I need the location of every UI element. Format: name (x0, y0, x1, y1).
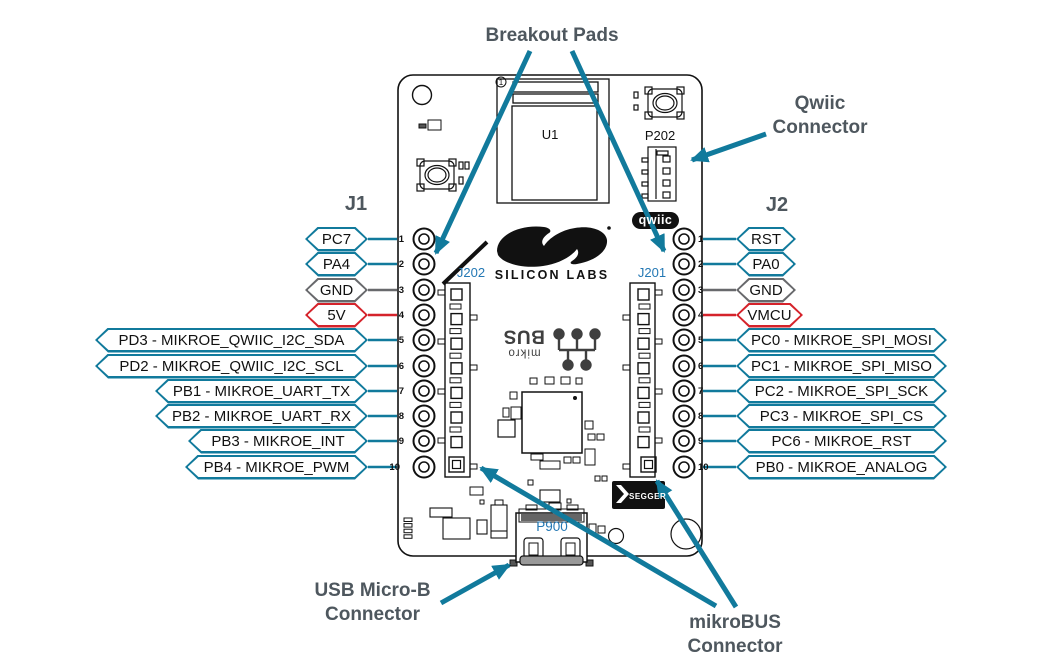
j1-pin-label-pc7: PC7 (305, 227, 368, 252)
board-annotation-diagram: Breakout Pads Qwiic Connector USB Micro-… (0, 0, 1054, 669)
qwiic-connector-refdes-label: P202 (639, 128, 681, 143)
j2-pin-label-pc3: PC3 - MIKROE_SPI_CS (736, 404, 947, 429)
arrow-qwiic (692, 134, 766, 160)
j1-pin-label-pa4: PA4 (305, 252, 368, 277)
j1-pin-label-pb3: PB3 - MIKROE_INT (188, 429, 368, 454)
j1-pin-number: 10 (386, 462, 400, 473)
usb-connector (510, 503, 593, 566)
header-j1-title: J1 (336, 193, 376, 216)
j2-pin-number: 4 (698, 310, 712, 321)
module-pin1-marker: 1 (498, 78, 505, 88)
j1-pin-number: 5 (390, 335, 404, 346)
leader-lines-j2 (703, 239, 736, 467)
j1-pin-label-pd2: PD2 - MIKROE_QWIIC_I2C_SCL (95, 354, 368, 379)
j1-pin-number: 6 (390, 361, 404, 372)
j1-pin-number: 7 (390, 386, 404, 397)
j2-pin-label-pc6: PC6 - MIKROE_RST (736, 429, 947, 454)
usb-connector-refdes-label: P900 (531, 519, 573, 534)
arrow-usb (441, 565, 509, 603)
j1-pin-label-pb2: PB2 - MIKROE_UART_RX (155, 404, 368, 429)
j2-pin-label-pb0: PB0 - MIKROE_ANALOG (736, 455, 947, 480)
mikrobus-socket-right-refdes-label: J201 (631, 265, 673, 280)
segger-logo-text: SEGGER (629, 492, 665, 501)
j1-pin-number: 8 (390, 411, 404, 422)
j2-pin-label-pc0: PC0 - MIKROE_SPI_MOSI (736, 328, 947, 353)
j1-pin-label-5v: 5V (305, 303, 368, 328)
j2-pin-number: 10 (698, 462, 712, 473)
header-j2-title: J2 (757, 194, 797, 217)
module-refdes-label: U1 (538, 127, 562, 142)
j2-pin-number: 9 (698, 436, 712, 447)
j1-pin-label-gnd: GND (305, 278, 368, 303)
j1-pin-number: 3 (390, 285, 404, 296)
j2-pin-number: 2 (698, 259, 712, 270)
j2-pin-label-pc1: PC1 - MIKROE_SPI_MISO (736, 354, 947, 379)
j1-pin-number: 4 (390, 310, 404, 321)
j2-pin-label-vmcu: VMCU (736, 303, 803, 328)
j1-pin-label-pb4: PB4 - MIKROE_PWM (185, 455, 368, 480)
j1-pin-number: 9 (390, 436, 404, 447)
mikrobus-logo-text: mikro BUS (498, 327, 550, 358)
j2-pin-number: 7 (698, 386, 712, 397)
j2-pin-number: 6 (698, 361, 712, 372)
silicon-labs-logo-text: SILICON LABS (488, 268, 616, 282)
j2-pin-label-pc2: PC2 - MIKROE_SPI_SCK (736, 379, 947, 404)
j1-pin-number: 1 (390, 234, 404, 245)
j1-pin-label-pb1: PB1 - MIKROE_UART_TX (155, 379, 368, 404)
j1-pin-label-pd3: PD3 - MIKROE_QWIIC_I2C_SDA (95, 328, 368, 353)
annotation-mikrobus-connector: mikroBUS Connector (660, 611, 810, 659)
j2-pin-number: 1 (698, 234, 712, 245)
j1-pin-number: 2 (390, 259, 404, 270)
j2-pin-number: 5 (698, 335, 712, 346)
annotation-usb-connector: USB Micro-B Connector (300, 579, 445, 627)
j2-pin-number: 8 (698, 411, 712, 422)
leader-lines-j1 (368, 239, 397, 467)
annotation-breakout-pads: Breakout Pads (452, 24, 652, 48)
annotation-qwiic-connector: Qwiic Connector (760, 92, 880, 140)
mikrobus-socket-left-refdes-label: J202 (450, 265, 492, 280)
j2-pin-number: 3 (698, 285, 712, 296)
qwiic-logo-text: qwiic (632, 212, 679, 229)
